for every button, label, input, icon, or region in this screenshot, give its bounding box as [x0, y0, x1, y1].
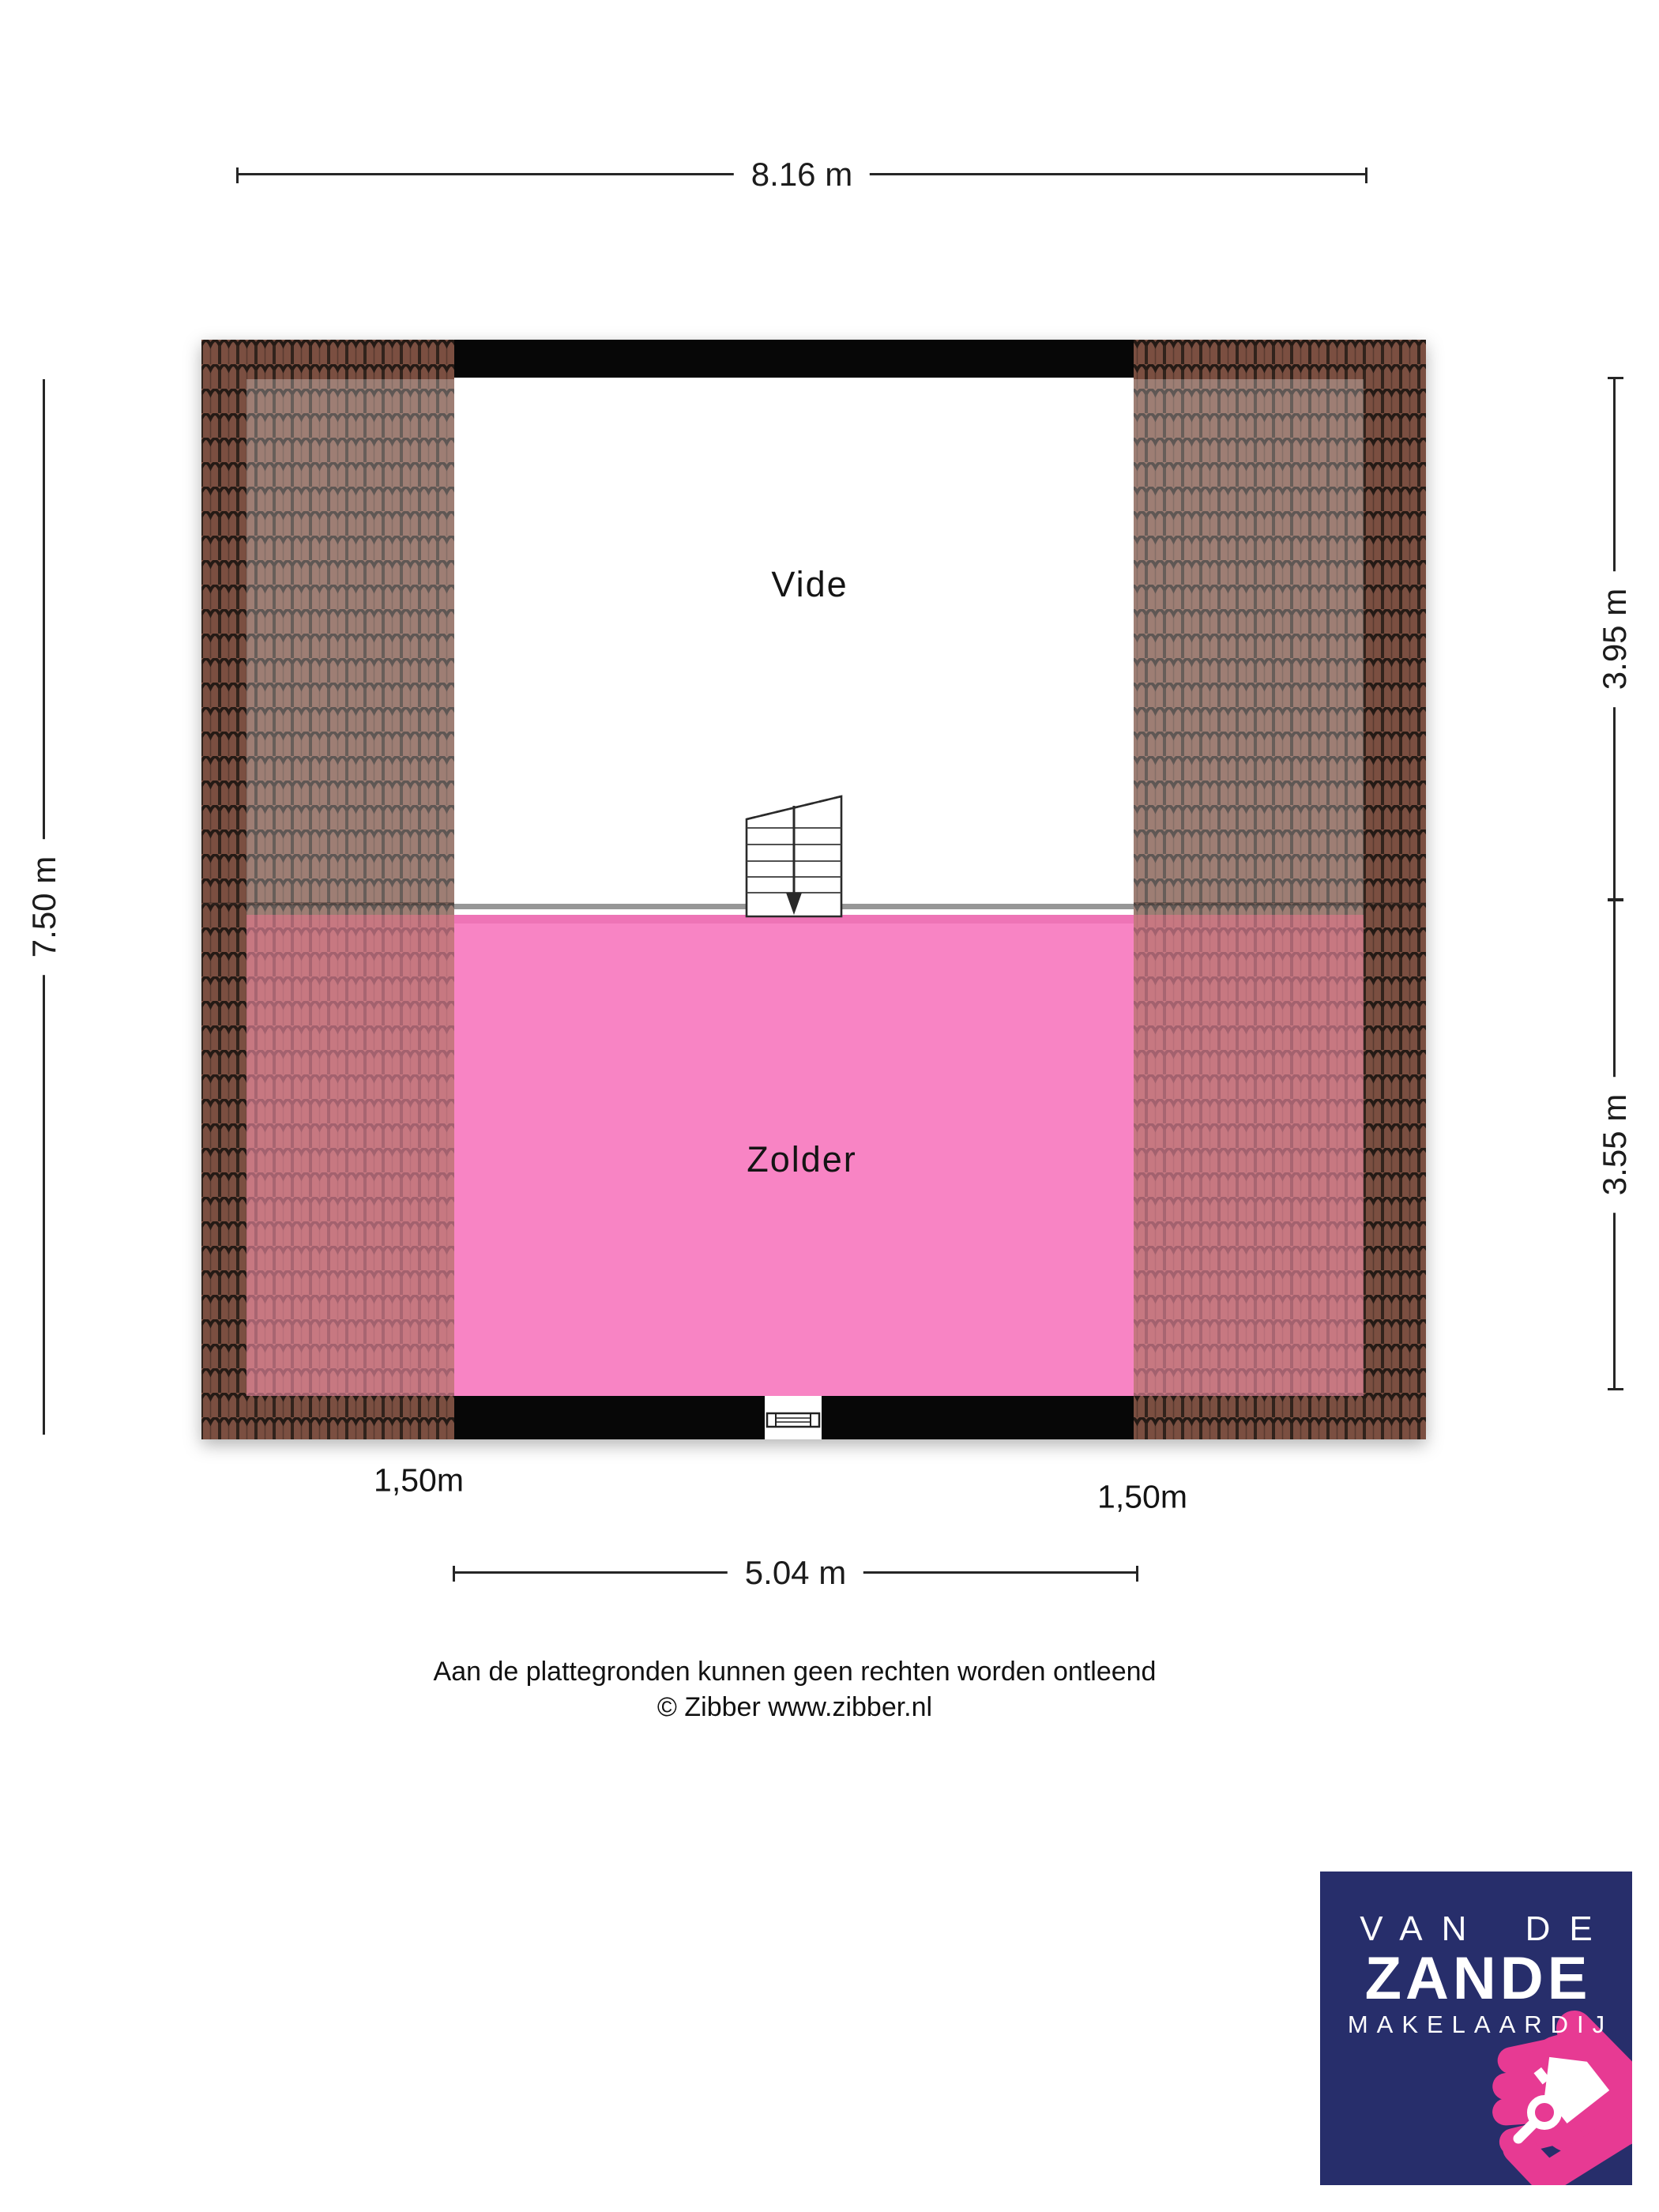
dimension-top: 8.16 m — [237, 173, 1367, 175]
room-label-vide: Vide — [771, 564, 848, 605]
disclaimer-line1: Aan de plattegronden kunnen geen rechten… — [242, 1654, 1348, 1690]
dimension-bottom: 5.04 m — [453, 1571, 1138, 1574]
headroom-label-right: 1,50m — [1097, 1479, 1187, 1516]
logo-line1: VAN DE — [1320, 1909, 1632, 1949]
wall-top — [454, 340, 1134, 378]
dimension-right-top: 3.95 m — [1613, 378, 1616, 900]
logo-line3: MAKELAARDIJ — [1320, 2011, 1632, 2039]
dimension-right-top-label: 3.95 m — [1596, 570, 1634, 706]
wall-divider-left — [454, 904, 747, 909]
roof-right-inner-lower — [1134, 915, 1364, 1396]
floorplan-drawing — [201, 340, 1426, 1439]
logo-line2: ZANDE — [1320, 1944, 1632, 2013]
roof-right-inner-upper — [1134, 379, 1364, 915]
dimension-bottom-label: 5.04 m — [728, 1554, 863, 1592]
floorplan-page: Vide Zolder 8.16 m 7.50 m 3.95 m 3.55 m … — [0, 0, 1659, 2212]
headroom-label-left: 1,50m — [374, 1462, 464, 1499]
dimension-top-label: 8.16 m — [734, 156, 870, 194]
disclaimer: Aan de plattegronden kunnen geen rechten… — [242, 1654, 1348, 1725]
dimension-left: 7.50 m — [43, 379, 45, 1435]
window-symbol — [765, 1396, 822, 1439]
hand-shape — [1491, 2022, 1632, 2178]
disclaimer-line2: © Zibber www.zibber.nl — [242, 1690, 1348, 1725]
room-label-zolder: Zolder — [747, 1139, 857, 1180]
roof-left-inner-lower — [246, 915, 454, 1396]
dimension-right-bottom-label: 3.55 m — [1596, 1077, 1634, 1213]
dimension-left-label: 7.50 m — [25, 839, 63, 975]
wall-divider-right — [841, 904, 1134, 909]
brand-logo: VAN DE ZANDE MAKELAARDIJ — [1320, 1872, 1632, 2185]
dimension-right-bottom: 3.55 m — [1613, 900, 1616, 1390]
roof-left-inner-upper — [246, 379, 454, 915]
